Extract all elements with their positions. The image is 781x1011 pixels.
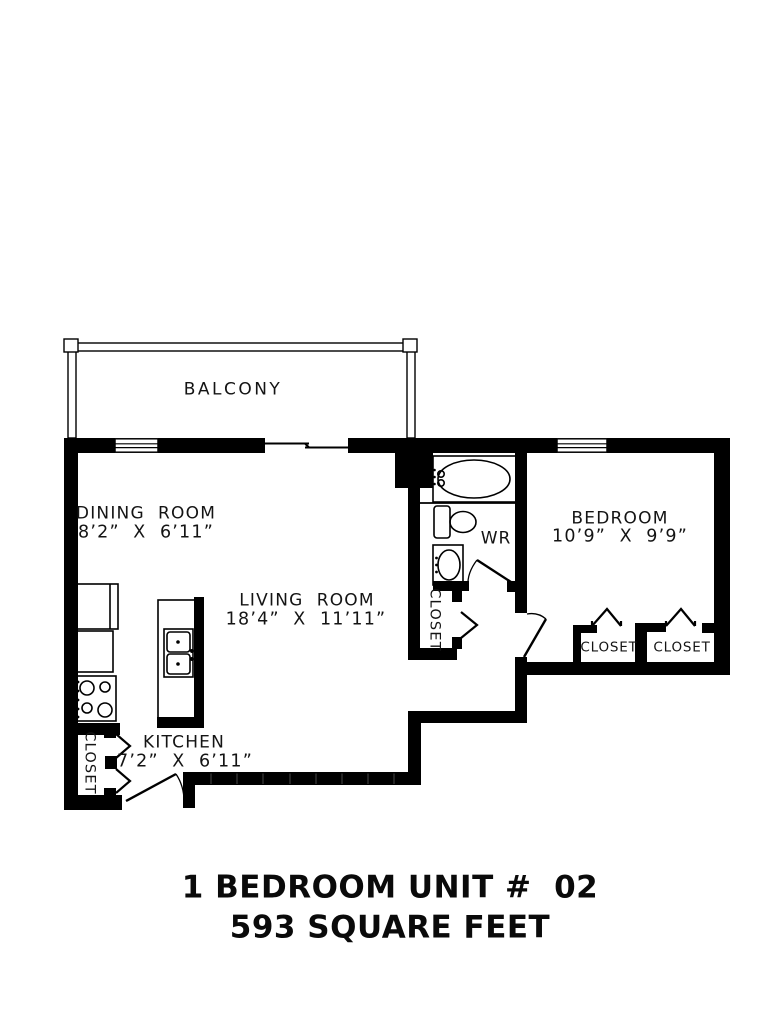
dining-room-dimensions: 8’2” X 6’11” bbox=[78, 524, 214, 542]
bedroom-door bbox=[524, 614, 546, 657]
wall-segment bbox=[452, 590, 462, 602]
kitchen-counter bbox=[72, 631, 113, 672]
bedroom-closet-left-label: CLOSET bbox=[580, 641, 637, 655]
wall-segment bbox=[635, 623, 666, 632]
wall-segment bbox=[702, 623, 730, 633]
kitchen-island-sink bbox=[158, 600, 195, 718]
living-room-dimensions: 18’4” X 11’11” bbox=[226, 611, 387, 629]
wall-segment bbox=[104, 788, 116, 801]
wall-segment bbox=[158, 438, 265, 453]
bathtub bbox=[420, 456, 516, 503]
kitchen-label: KITCHEN bbox=[143, 735, 225, 752]
kitchen-closet-label: CLOSET bbox=[82, 731, 97, 795]
wall-segment bbox=[714, 438, 730, 675]
balcony-label: BALCONY bbox=[184, 382, 283, 399]
wall-segment bbox=[183, 772, 195, 808]
sliding-door bbox=[265, 444, 349, 448]
toilet bbox=[434, 506, 476, 538]
living-room-label: LIVING ROOM bbox=[239, 593, 374, 610]
stove bbox=[75, 676, 116, 721]
wall-segment bbox=[408, 486, 420, 658]
wall-segment bbox=[515, 662, 730, 675]
floor-plan: BALCONY DINING ROOM 8’2” X 6’11” LIVING … bbox=[0, 0, 781, 1011]
window-dining bbox=[115, 439, 158, 452]
washroom-label: WR bbox=[481, 531, 512, 548]
wall-segment bbox=[185, 772, 420, 785]
window-bedroom bbox=[557, 439, 607, 452]
wall-segment bbox=[348, 438, 557, 453]
plan-subtitle: 593 SQUARE FEET bbox=[230, 913, 550, 944]
bedroom-closet-right-label: CLOSET bbox=[653, 641, 710, 655]
wall-segment bbox=[64, 438, 78, 810]
wall-segment bbox=[104, 723, 116, 738]
refrigerator bbox=[75, 584, 118, 629]
entry-door bbox=[126, 774, 184, 801]
wall-segment bbox=[408, 711, 527, 723]
bedroom-dimensions: 10’9” X 9’9” bbox=[552, 528, 688, 546]
kitchen-dimensions: 7’2” X 6’11” bbox=[117, 753, 253, 771]
wall-segment bbox=[452, 637, 462, 649]
hall-closet-label: CLOSET bbox=[427, 588, 442, 652]
wall-segment bbox=[607, 438, 730, 453]
wall-segment bbox=[573, 625, 597, 633]
plan-title: 1 BEDROOM UNIT # 02 bbox=[182, 873, 598, 904]
hall-closet-door bbox=[461, 612, 477, 638]
wall-segment bbox=[105, 756, 117, 769]
bathroom-sink bbox=[433, 545, 463, 585]
wall-segment bbox=[395, 452, 433, 488]
bedroom-label: BEDROOM bbox=[571, 511, 668, 528]
dining-room-label: DINING ROOM bbox=[76, 506, 216, 523]
